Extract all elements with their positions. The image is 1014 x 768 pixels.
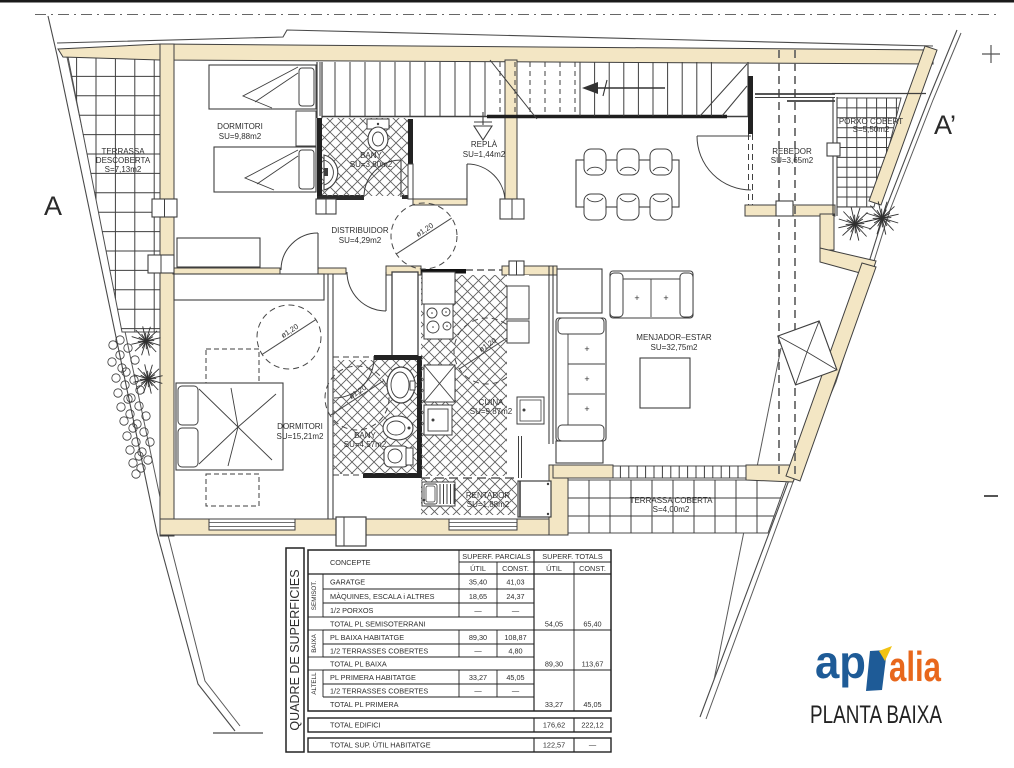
svg-text:SU=1,88m2: SU=1,88m2 bbox=[467, 500, 510, 509]
svg-text:SU=4,57m2: SU=4,57m2 bbox=[344, 440, 387, 449]
svg-text:DESCOBERTA: DESCOBERTA bbox=[96, 156, 151, 165]
svg-text:—: — bbox=[474, 687, 482, 696]
svg-text:41,03: 41,03 bbox=[506, 578, 524, 587]
svg-text:CUINA: CUINA bbox=[479, 398, 505, 407]
svg-text:ap: ap bbox=[815, 636, 866, 688]
svg-text:+: + bbox=[584, 374, 589, 384]
svg-text:45,05: 45,05 bbox=[506, 673, 524, 682]
svg-text:GARATGE: GARATGE bbox=[330, 578, 365, 587]
svg-text:A’: A’ bbox=[934, 110, 956, 140]
svg-text:65,40: 65,40 bbox=[583, 620, 601, 629]
svg-text:SU=15,21m2: SU=15,21m2 bbox=[277, 432, 324, 441]
svg-text:+: + bbox=[663, 293, 668, 303]
svg-text:REPLÀ: REPLÀ bbox=[471, 140, 498, 149]
svg-text:TOTAL PL SEMISOTERRANI: TOTAL PL SEMISOTERRANI bbox=[330, 620, 426, 629]
svg-text:113,67: 113,67 bbox=[582, 660, 604, 669]
svg-text:SU=3,80m2: SU=3,80m2 bbox=[350, 160, 393, 169]
svg-text:24,37: 24,37 bbox=[506, 592, 524, 601]
svg-text:SU=3,65m2: SU=3,65m2 bbox=[771, 156, 814, 165]
svg-text:45,05: 45,05 bbox=[583, 700, 601, 709]
svg-text:PL BAIXA HABITATGE: PL BAIXA HABITATGE bbox=[330, 633, 404, 642]
svg-text:CONST.: CONST. bbox=[502, 564, 529, 573]
svg-text:—: — bbox=[512, 687, 520, 696]
svg-text:33,27: 33,27 bbox=[469, 673, 487, 682]
svg-text:S=4,00m2: S=4,00m2 bbox=[653, 505, 690, 514]
svg-text:18,65: 18,65 bbox=[469, 592, 487, 601]
svg-text:SU=1,44m2: SU=1,44m2 bbox=[463, 150, 506, 159]
svg-text:DORMITORI: DORMITORI bbox=[217, 122, 263, 131]
svg-text:MENJADOR–ESTAR: MENJADOR–ESTAR bbox=[636, 333, 712, 342]
svg-text:89,30: 89,30 bbox=[469, 633, 487, 642]
svg-text:122,57: 122,57 bbox=[543, 741, 565, 750]
svg-text:SU=4,29m2: SU=4,29m2 bbox=[339, 236, 382, 245]
svg-text:RENTADOR: RENTADOR bbox=[466, 491, 511, 500]
svg-text:108,87: 108,87 bbox=[504, 633, 526, 642]
svg-text:—: — bbox=[512, 606, 520, 615]
svg-text:DISTRIBUIDOR: DISTRIBUIDOR bbox=[331, 226, 389, 235]
svg-text:176,62: 176,62 bbox=[543, 721, 565, 730]
svg-text:+: + bbox=[634, 293, 639, 303]
svg-text:PLANTA BAIXA: PLANTA BAIXA bbox=[810, 701, 942, 729]
svg-text:TERRASSA COBERTA: TERRASSA COBERTA bbox=[630, 496, 714, 505]
svg-text:SU=9,87m2: SU=9,87m2 bbox=[470, 407, 513, 416]
svg-text:REBEDOR: REBEDOR bbox=[772, 147, 812, 156]
svg-text:S=5,50m2: S=5,50m2 bbox=[853, 125, 890, 134]
svg-text:MÀQUINES, ESCALA i ALTRES: MÀQUINES, ESCALA i ALTRES bbox=[330, 592, 435, 601]
svg-text:BANY: BANY bbox=[354, 431, 376, 440]
svg-text:TERRASSA: TERRASSA bbox=[101, 147, 145, 156]
svg-text:TOTAL EDIFICI: TOTAL EDIFICI bbox=[330, 721, 381, 730]
svg-text:PL PRIMERA HABITATGE: PL PRIMERA HABITATGE bbox=[330, 673, 416, 682]
svg-text:TOTAL PL PRIMERA: TOTAL PL PRIMERA bbox=[330, 700, 399, 709]
svg-text:4,80: 4,80 bbox=[508, 647, 522, 656]
svg-text:54,05: 54,05 bbox=[545, 620, 563, 629]
svg-text:33,27: 33,27 bbox=[545, 700, 563, 709]
svg-text:CONST.: CONST. bbox=[579, 564, 606, 573]
svg-text:ÚTIL: ÚTIL bbox=[470, 564, 486, 573]
svg-text:S=7,13m2: S=7,13m2 bbox=[105, 165, 142, 174]
svg-text:TOTAL SUP. ÚTIL HABITATGE: TOTAL SUP. ÚTIL HABITATGE bbox=[330, 741, 431, 750]
svg-text:DORMITORI: DORMITORI bbox=[277, 422, 323, 431]
svg-text:1/2 PORXOS: 1/2 PORXOS bbox=[330, 606, 374, 615]
svg-text:SUPERF. TOTALS: SUPERF. TOTALS bbox=[542, 552, 603, 561]
svg-text:222,12: 222,12 bbox=[581, 721, 603, 730]
svg-text:1/2 TERRASSES COBERTES: 1/2 TERRASSES COBERTES bbox=[330, 687, 428, 696]
svg-text:QUADRE DE SUPERFICIES: QUADRE DE SUPERFICIES bbox=[288, 569, 302, 730]
svg-text:SEMISOT.: SEMISOT. bbox=[311, 581, 318, 611]
svg-text:ÚTIL: ÚTIL bbox=[546, 564, 562, 573]
svg-text:—: — bbox=[474, 606, 482, 615]
svg-text:CONCEPTE: CONCEPTE bbox=[330, 558, 371, 567]
svg-text:SU=32,75m2: SU=32,75m2 bbox=[651, 343, 698, 352]
svg-text:BAIXA: BAIXA bbox=[311, 633, 318, 652]
svg-text:+: + bbox=[584, 404, 589, 414]
svg-text:SUPERF. PARCIALS: SUPERF. PARCIALS bbox=[462, 552, 531, 561]
svg-text:—: — bbox=[589, 741, 597, 750]
svg-text:TOTAL PL BAIXA: TOTAL PL BAIXA bbox=[330, 660, 387, 669]
svg-text:ALTELL: ALTELL bbox=[311, 672, 318, 695]
svg-text:89,30: 89,30 bbox=[545, 660, 563, 669]
svg-text:—: — bbox=[474, 647, 482, 656]
svg-text:A: A bbox=[44, 191, 62, 221]
svg-text:1/2 TERRASSES COBERTES: 1/2 TERRASSES COBERTES bbox=[330, 647, 428, 656]
svg-text:alia: alia bbox=[889, 643, 941, 690]
svg-text:BANY: BANY bbox=[360, 151, 382, 160]
svg-text:+: + bbox=[584, 344, 589, 354]
svg-text:SU=9,88m2: SU=9,88m2 bbox=[219, 132, 262, 141]
svg-text:35,40: 35,40 bbox=[469, 578, 487, 587]
